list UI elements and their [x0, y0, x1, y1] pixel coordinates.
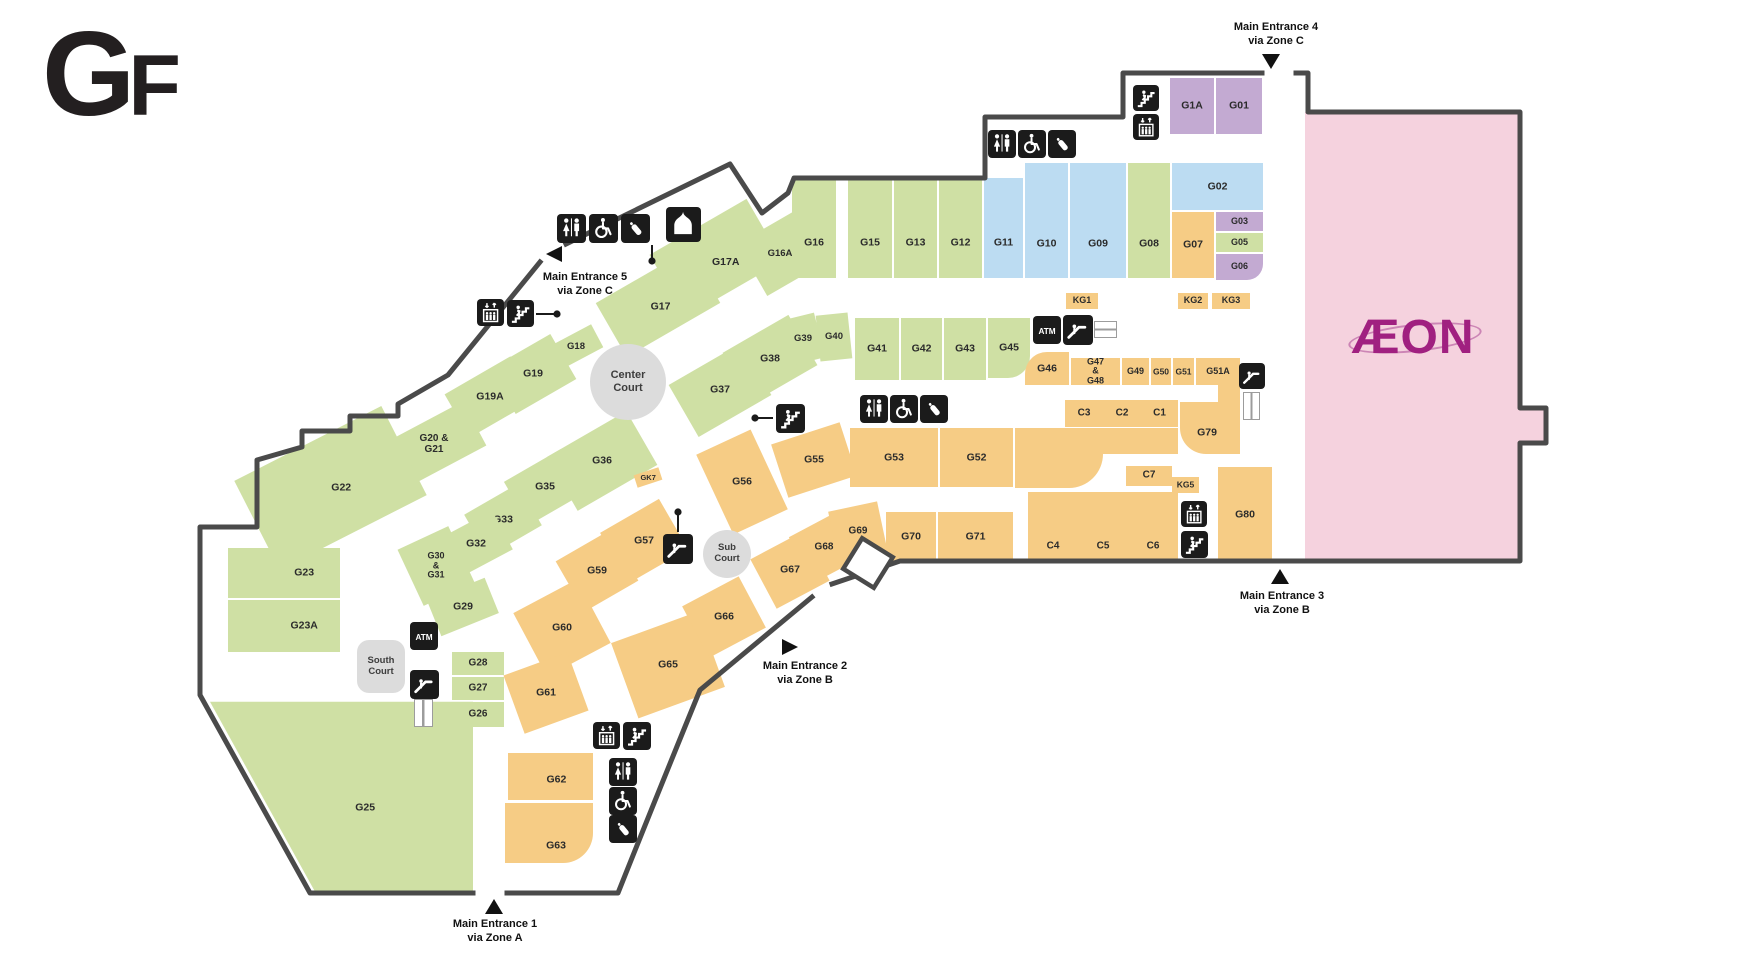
store-label: G36 [592, 455, 612, 466]
store-label: G01 [1229, 100, 1249, 111]
store-label: G12 [951, 237, 971, 248]
entrance-name: Main Entrance 2 [735, 659, 875, 673]
store-label: G66 [714, 611, 734, 622]
court-south: South Court [357, 640, 405, 693]
store-label: G1A [1181, 100, 1203, 111]
store-label: G26 [469, 709, 488, 720]
escalator-icon [1239, 363, 1265, 389]
store-label: G53 [884, 452, 904, 463]
store-label: G17 [651, 302, 671, 313]
store-label: G79 [1197, 428, 1217, 439]
store-label: G15 [860, 237, 880, 248]
walkway-track [414, 699, 433, 727]
store-label: G10 [1037, 238, 1057, 249]
store-label: C3 [1078, 408, 1091, 419]
store-c1: C1 [1141, 400, 1178, 427]
toilet-icon [609, 758, 637, 786]
store-g42: G42 [901, 318, 942, 380]
store-label: C6 [1147, 541, 1160, 552]
store-label: G28 [469, 658, 488, 669]
mall-block [1015, 452, 1103, 488]
store-g09: G09 [1070, 163, 1126, 278]
store-label: G80 [1235, 509, 1255, 520]
store-kg1: KG1 [1066, 293, 1098, 309]
store-label: KG2 [1184, 296, 1203, 306]
store-c6: C6 [1128, 492, 1178, 562]
toilet-icon [860, 395, 888, 423]
store-label: G60 [552, 622, 572, 633]
store-g62: G62 [508, 753, 593, 800]
entrance-name: Main Entrance 5 [515, 270, 655, 284]
store-label: G62 [547, 775, 567, 786]
store-label: G11 [994, 237, 1013, 248]
store-label: G61 [536, 687, 556, 698]
stairs-icon [507, 300, 534, 327]
store-g79: G79 [1180, 402, 1240, 454]
store-g07: G07 [1172, 212, 1214, 278]
store-g53: G53 [850, 428, 938, 487]
store-label: G29 [453, 601, 473, 612]
store-label: G57 [634, 535, 654, 546]
store-label: C1 [1153, 408, 1166, 419]
walkway-track [1094, 321, 1117, 338]
store-label: G22 [332, 482, 352, 493]
prayer-icon [666, 207, 701, 242]
store-g08: G08 [1128, 163, 1170, 278]
baby-icon [621, 214, 650, 243]
store-label: G65 [658, 659, 678, 670]
store-g40: G40 [816, 312, 853, 361]
entrance-label-main-entrance-1: Main Entrance 1via Zone A [425, 917, 565, 946]
store-label: G71 [966, 531, 986, 542]
store-g45: G45 [988, 318, 1030, 378]
store-g80: G80 [1218, 467, 1272, 562]
store-g23a: G23A [228, 600, 340, 652]
store-c3: C3 [1065, 400, 1103, 427]
mall-block [1015, 428, 1178, 454]
store-label: G50 [1153, 367, 1169, 376]
store-label: G41 [867, 343, 887, 354]
store-label: G47 & G48 [1083, 357, 1108, 386]
store-label: GK7 [640, 473, 655, 481]
store-label: G23A [290, 620, 317, 631]
store-g22: G22 [234, 406, 426, 570]
store-g55: G55 [771, 422, 857, 498]
store-g70: G70 [886, 512, 936, 562]
wheelchair-icon [1018, 130, 1046, 158]
store-label: G49 [1127, 367, 1144, 377]
stairs-icon [1181, 531, 1208, 558]
store-label: G68 [815, 543, 834, 554]
entrance-zone: via Zone B [1212, 603, 1352, 617]
svg-text:ATM: ATM [1038, 327, 1055, 336]
store-label: G16A [768, 249, 793, 259]
store-g10: G10 [1025, 163, 1068, 278]
elevator-icon [477, 299, 504, 326]
store-label: G55 [804, 454, 824, 465]
store-kg2: KG2 [1178, 293, 1208, 309]
store-g49: G49 [1122, 358, 1149, 385]
store-g16: G16 [792, 178, 836, 278]
toilet-icon [557, 214, 586, 243]
store-label: C7 [1143, 471, 1156, 482]
store-g47-g48: G47 & G48 [1071, 358, 1120, 385]
store-g05: G05 [1216, 233, 1263, 252]
mall-floorplan-gf: GF ÆONG17G17AG16AG16G15G13G12G11G10G09G0… [0, 0, 1746, 958]
aeon-block-extension [1520, 408, 1546, 443]
elevator-icon [1181, 501, 1207, 527]
store-label: G32 [466, 538, 486, 549]
store-label: G37 [710, 384, 730, 395]
entrance-zone: via Zone B [735, 673, 875, 687]
store-label: G18 [567, 342, 585, 352]
store-g71: G71 [938, 512, 1013, 562]
store-label: C4 [1047, 541, 1060, 552]
entrance-label-main-entrance-3: Main Entrance 3via Zone B [1212, 589, 1352, 618]
escalator-icon [1063, 315, 1093, 345]
entrance-arrow-main-entrance-3 [1271, 569, 1289, 584]
store-c5: C5 [1078, 492, 1128, 562]
store-g52: G52 [940, 428, 1013, 487]
stairs-icon [776, 404, 805, 433]
store-label: G59 [587, 565, 607, 576]
store-label: G23 [294, 567, 314, 578]
wheelchair-icon [589, 214, 618, 243]
entrance-zone: via Zone C [1206, 34, 1346, 48]
store-g46: G46 [1025, 352, 1069, 385]
entrance-name: Main Entrance 3 [1212, 589, 1352, 603]
store-label: G05 [1231, 238, 1248, 248]
store-label: G13 [906, 237, 926, 248]
store-g51: G51 [1173, 358, 1194, 385]
walkway-track [1243, 392, 1260, 420]
store-label: G08 [1139, 238, 1159, 249]
atm-icon: ATM [410, 622, 438, 650]
store-g06: G06 [1216, 254, 1263, 280]
store-g02: G02 [1172, 163, 1263, 210]
store-label: G07 [1183, 239, 1203, 250]
store-label: G03 [1231, 217, 1248, 227]
store-label: G06 [1231, 262, 1248, 272]
aeon-logo: ÆON [1324, 302, 1502, 372]
store-label: KG1 [1073, 296, 1092, 306]
store-label: G45 [999, 342, 1019, 353]
store-label: G20 & G21 [411, 434, 457, 456]
stairs-icon [1133, 85, 1159, 111]
store-label: G70 [901, 531, 921, 542]
stairs-icon [623, 722, 651, 750]
store-label: G51 [1175, 367, 1191, 376]
entrance-name: Main Entrance 1 [425, 917, 565, 931]
entrance-arrow-main-entrance-1 [485, 899, 503, 914]
store-g27: G27 [452, 677, 504, 700]
store-g1a: G1A [1170, 78, 1214, 134]
store-g63: G63 [505, 803, 593, 863]
store-label: C2 [1116, 408, 1129, 419]
store-kg3: KG3 [1212, 293, 1250, 309]
store-label: G40 [825, 332, 843, 342]
toilet-icon [988, 130, 1016, 158]
store-g03: G03 [1216, 212, 1263, 231]
baby-icon [1048, 130, 1076, 158]
store-label: G35 [535, 481, 555, 492]
store-label: G69 [849, 527, 868, 538]
court-sub: Sub Court [703, 530, 751, 578]
store-c7: C7 [1126, 466, 1172, 486]
entrance-arrow-main-entrance-5 [546, 246, 562, 262]
store-g23: G23 [228, 548, 340, 598]
court-center: Center Court [590, 344, 666, 420]
store-g43: G43 [944, 318, 986, 380]
escalator-icon [410, 670, 439, 699]
store-label: G46 [1037, 363, 1057, 374]
store-kg5: KG5 [1172, 477, 1199, 493]
baby-icon [609, 815, 637, 843]
store-label: G09 [1088, 238, 1108, 249]
store-c2: C2 [1103, 400, 1141, 427]
store-g12: G12 [939, 178, 982, 278]
store-label: G17A [711, 257, 738, 268]
store-label: G51A [1206, 367, 1230, 377]
store-label: G30 & G31 [427, 551, 444, 580]
store-label: C5 [1097, 541, 1110, 552]
store-g51a: G51A [1196, 358, 1240, 385]
store-g11: G11 [984, 178, 1023, 278]
store-label: G19A [476, 391, 503, 402]
entrance-label-main-entrance-4: Main Entrance 4via Zone C [1206, 20, 1346, 49]
store-label: G02 [1208, 181, 1228, 192]
store-g01: G01 [1216, 78, 1262, 134]
store-g69: G69 [828, 501, 888, 562]
entrance-arrow-main-entrance-2 [782, 639, 798, 655]
entrance-name: Main Entrance 4 [1206, 20, 1346, 34]
store-g13: G13 [894, 178, 937, 278]
wheelchair-icon [890, 395, 918, 423]
store-label: G52 [967, 452, 987, 463]
store-g61: G61 [503, 652, 588, 734]
elevator-icon [593, 722, 620, 749]
store-label: G38 [760, 353, 780, 364]
store-label: G39 [794, 334, 812, 344]
store-label: G19 [523, 368, 543, 379]
entrance-zone: via Zone C [515, 284, 655, 298]
svg-text:ATM: ATM [415, 633, 432, 642]
baby-icon [920, 395, 948, 423]
store-label: KG3 [1222, 296, 1241, 306]
store-g28: G28 [452, 652, 504, 675]
entrance-arrow-main-entrance-4 [1262, 54, 1280, 69]
store-label: G67 [780, 564, 800, 575]
store-g26: G26 [452, 702, 504, 727]
elevator-icon [1133, 114, 1159, 140]
store-g15: G15 [848, 178, 892, 278]
store-label: G27 [469, 683, 488, 694]
store-label: G42 [912, 343, 932, 354]
store-label: G16 [804, 237, 824, 248]
store-c4: C4 [1028, 492, 1078, 562]
store-label: G63 [546, 841, 566, 852]
entrance-label-main-entrance-2: Main Entrance 2via Zone B [735, 659, 875, 688]
atm-icon: ATM [1033, 316, 1061, 344]
escalator-icon [663, 534, 693, 564]
store-label: G25 [355, 803, 375, 814]
wheelchair-icon [609, 787, 637, 815]
entrance-zone: via Zone A [425, 931, 565, 945]
store-label: G56 [732, 476, 752, 487]
store-g41: G41 [855, 318, 899, 380]
store-label: KG5 [1177, 480, 1194, 489]
floor-title: GF [42, 14, 174, 134]
store-label: G43 [955, 343, 975, 354]
entrance-label-main-entrance-5: Main Entrance 5via Zone C [515, 270, 655, 299]
store-g50: G50 [1151, 358, 1171, 385]
